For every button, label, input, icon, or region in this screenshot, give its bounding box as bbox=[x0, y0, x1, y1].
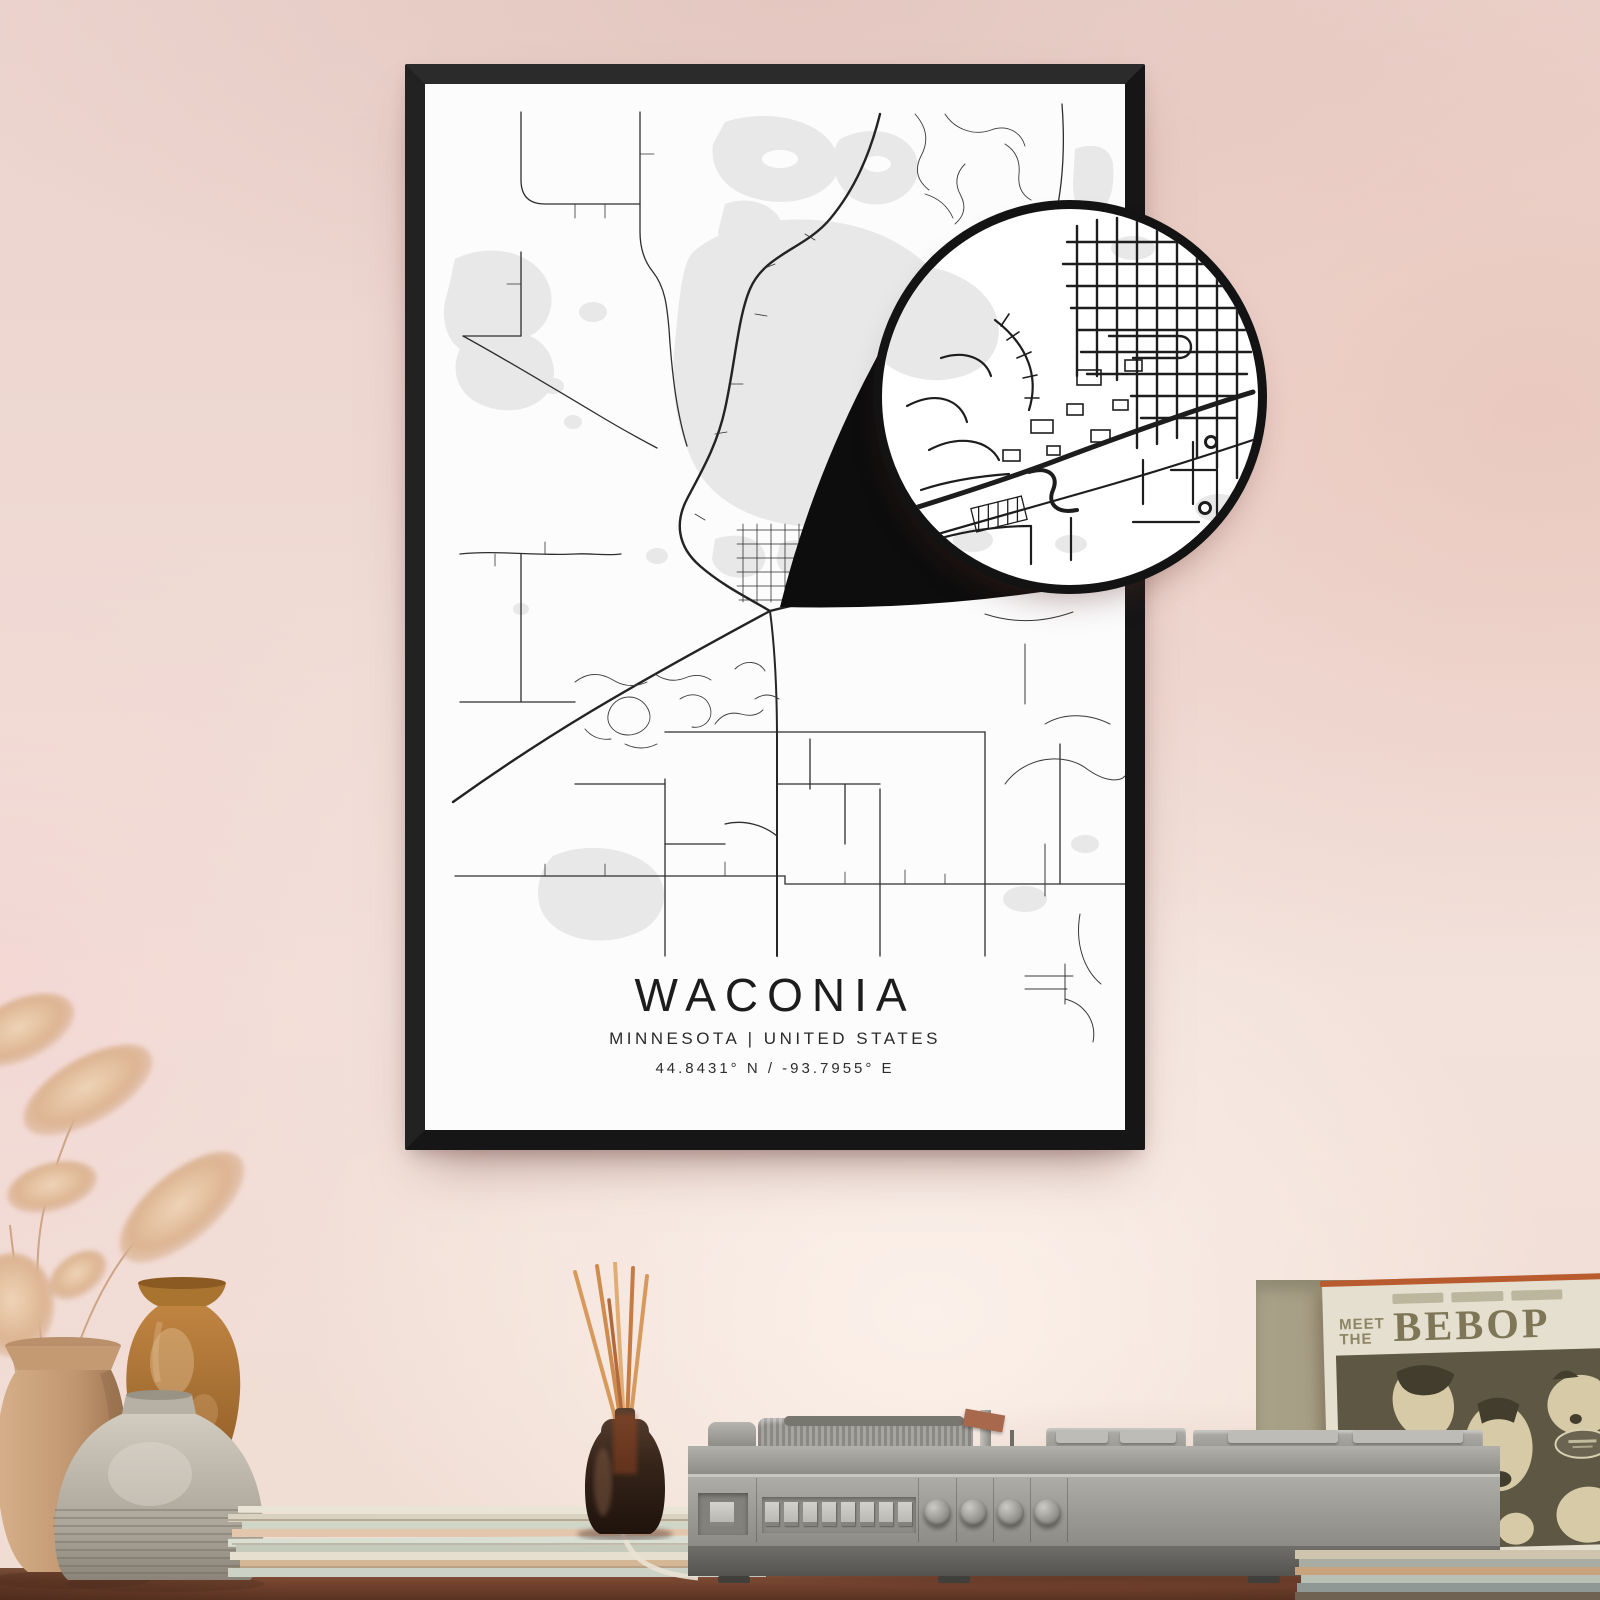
preset-button bbox=[784, 1502, 798, 1526]
panel-divider bbox=[1030, 1478, 1031, 1542]
reed-diffuser bbox=[545, 1262, 685, 1540]
sleeve-pretitle-bottom: THE bbox=[1339, 1331, 1385, 1347]
player-foot bbox=[718, 1576, 750, 1583]
platter-mat bbox=[784, 1416, 964, 1426]
book-stack bbox=[1295, 1548, 1600, 1600]
panel-divider bbox=[918, 1478, 919, 1542]
panel-divider bbox=[993, 1478, 994, 1542]
player-foot bbox=[1248, 1576, 1280, 1583]
poster-coordinates: 44.8431° N / -93.7955° E bbox=[425, 1060, 1125, 1077]
power-button bbox=[710, 1502, 734, 1526]
sleeve-pretitle: MEET THE bbox=[1339, 1316, 1385, 1347]
diffuser-reeds bbox=[575, 1262, 647, 1424]
deck-bump bbox=[1120, 1430, 1176, 1443]
tone-knob bbox=[960, 1499, 987, 1526]
poster-caption-block: WACONIA MINNESOTA | UNITED STATES 44.843… bbox=[425, 968, 1125, 1077]
panel-divider bbox=[1067, 1478, 1068, 1542]
tuning-knob bbox=[1034, 1499, 1061, 1526]
preset-button bbox=[898, 1502, 912, 1526]
magnifier-detail-circle bbox=[873, 200, 1267, 594]
player-foot bbox=[938, 1576, 970, 1583]
room-scene: WACONIA MINNESOTA | UNITED STATES 44.843… bbox=[0, 0, 1600, 1600]
deck-edge bbox=[688, 1446, 1500, 1474]
balance-knob bbox=[997, 1499, 1024, 1526]
deck-bump bbox=[1353, 1430, 1463, 1443]
panel-divider bbox=[756, 1478, 757, 1542]
preset-button bbox=[765, 1502, 779, 1526]
sleeve-title: BEBOP bbox=[1393, 1300, 1552, 1352]
volume-knob bbox=[924, 1499, 951, 1526]
deck-bump bbox=[1228, 1430, 1338, 1443]
magnified-map-graphic bbox=[881, 208, 1261, 588]
preset-button bbox=[803, 1502, 817, 1526]
poster-subtitle: MINNESOTA | UNITED STATES bbox=[425, 1029, 1125, 1049]
preset-button bbox=[860, 1502, 874, 1526]
poster-title: WACONIA bbox=[425, 968, 1125, 1022]
preset-button bbox=[879, 1502, 893, 1526]
preset-button bbox=[841, 1502, 855, 1526]
preset-button bbox=[822, 1502, 836, 1526]
deck-bump bbox=[1056, 1430, 1108, 1443]
panel-divider bbox=[956, 1478, 957, 1542]
